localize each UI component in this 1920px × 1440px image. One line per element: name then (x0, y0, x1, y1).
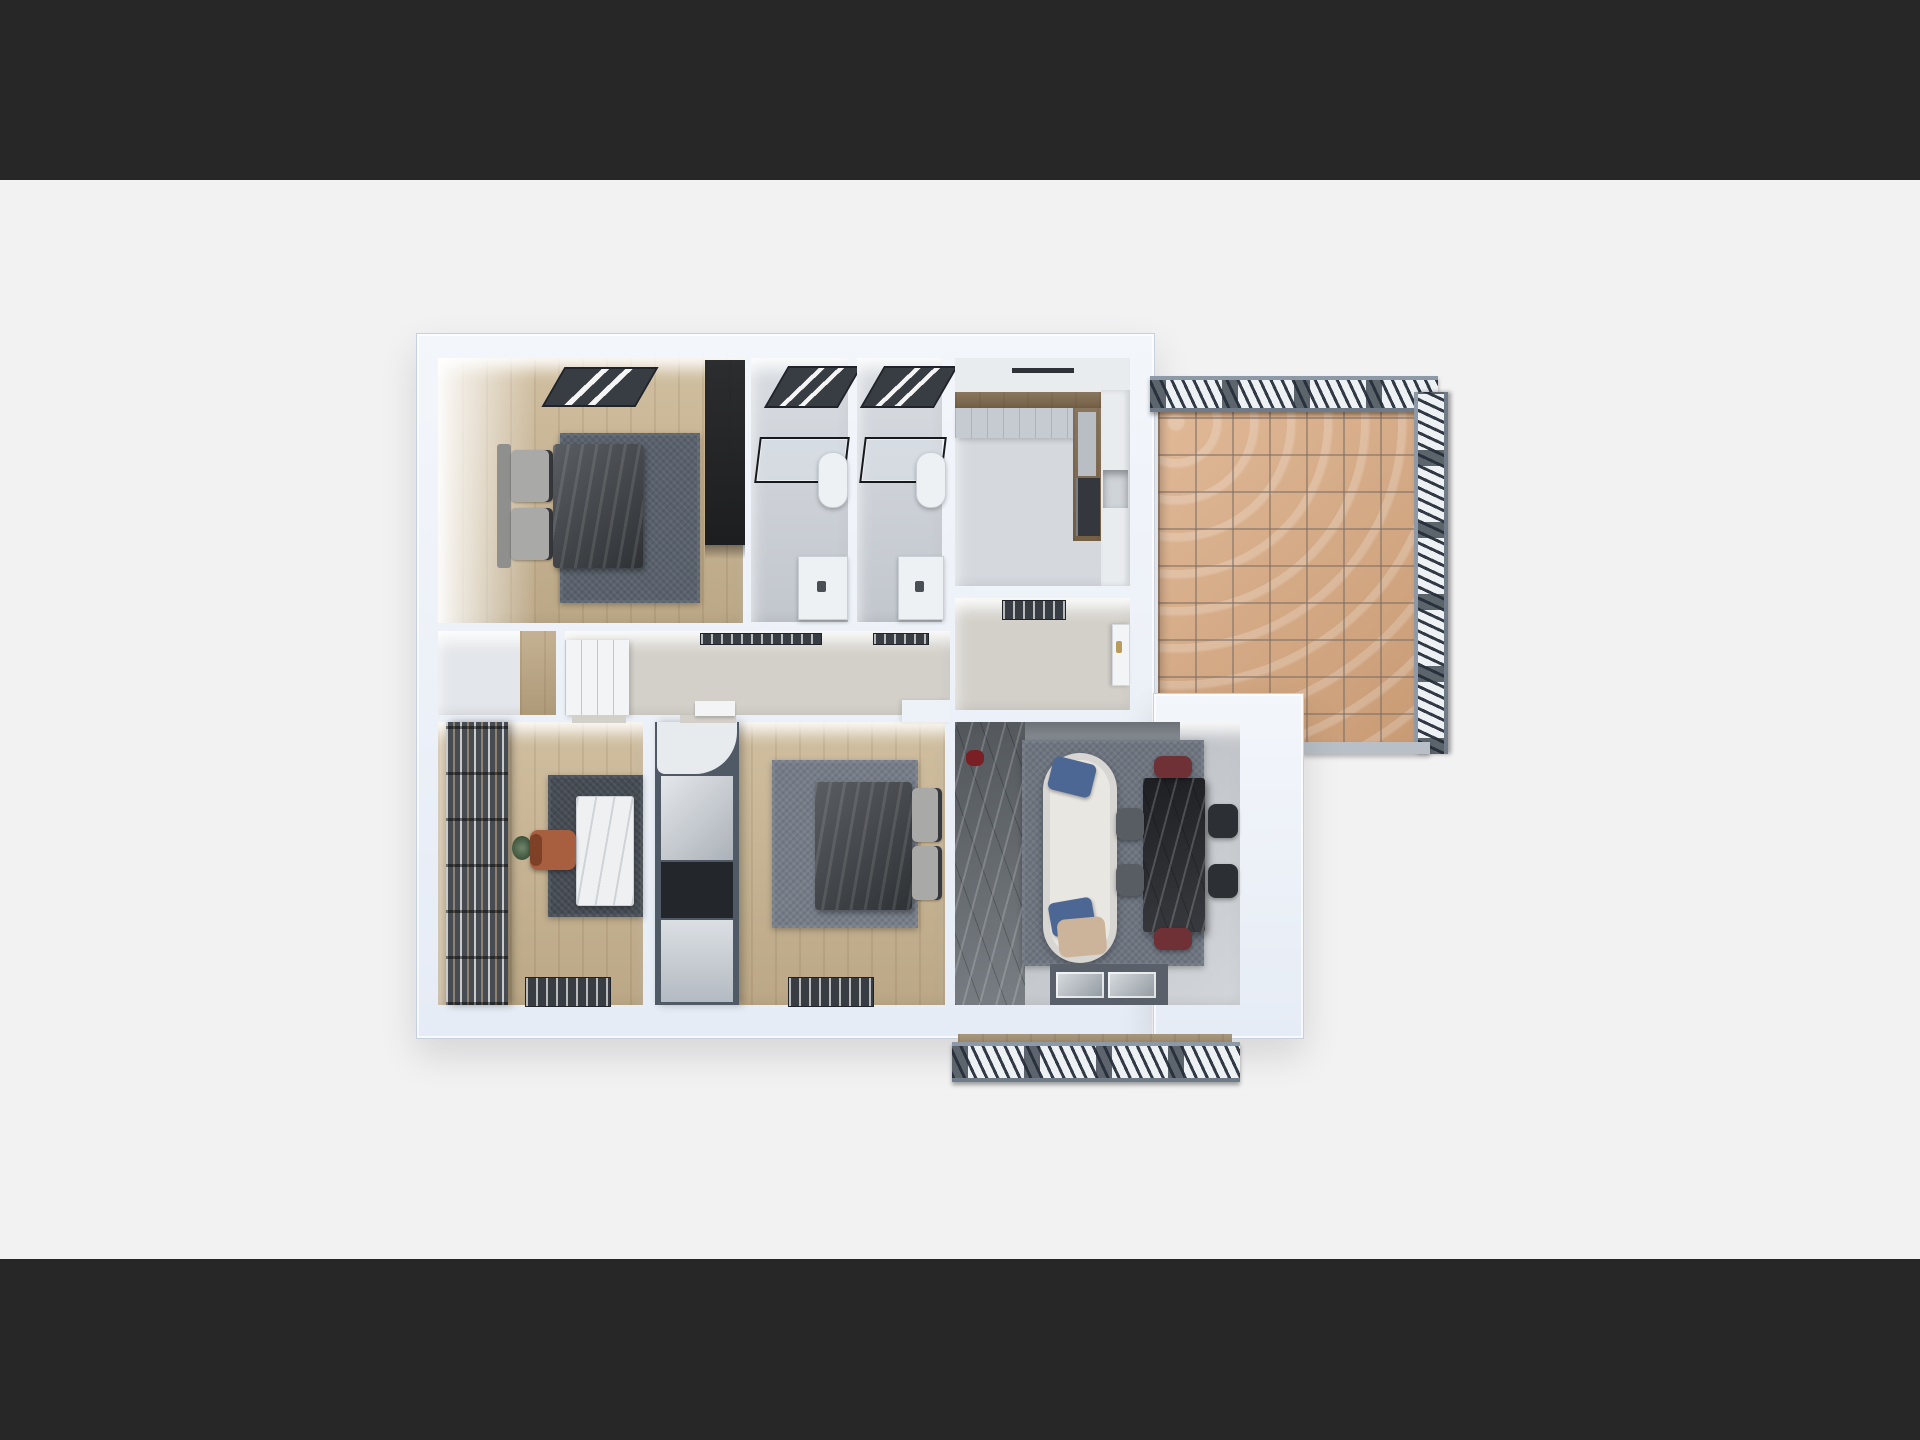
bed-headboard (497, 444, 511, 568)
doorway-office (572, 715, 626, 723)
wardrobe-dark-panel (661, 862, 733, 918)
marble-desk (576, 796, 634, 906)
ceiling-vent-icon (700, 633, 822, 645)
ceiling-vent-icon (764, 366, 862, 408)
kitchen-upper-wall-cabinets (955, 358, 1130, 392)
dining-chair-black (1208, 804, 1238, 838)
marble-floor-fade (1025, 722, 1180, 742)
office-chair (530, 830, 576, 870)
bed-pillow (511, 508, 553, 560)
door-handle-icon (1116, 641, 1122, 653)
dining-chair-gray (1116, 864, 1144, 896)
refrigerator (1076, 478, 1100, 536)
double-bed (497, 444, 643, 568)
bookshelf (446, 722, 508, 1005)
wall-segment (902, 700, 950, 722)
dining-chair-gray (1116, 808, 1144, 840)
letterbox-top-bar (0, 0, 1920, 180)
sofa-pillow-blue (1047, 755, 1098, 799)
nook-wood-strip (520, 631, 556, 715)
lower-balcony-railing (952, 1042, 1240, 1082)
side-balcony-railing-right (1414, 392, 1448, 754)
room-home-office (438, 722, 643, 1005)
wardrobe-lower-panel (661, 920, 733, 1002)
wardrobe-column (655, 722, 739, 1005)
dining-chair-red (1154, 928, 1192, 950)
room-master-bedroom (438, 358, 743, 623)
side-balcony-edge-strip (1302, 742, 1430, 754)
curved-sofa (1043, 753, 1117, 963)
cabinet-niche (1103, 470, 1128, 508)
screenshot-canvas (0, 0, 1920, 1440)
glass-pane (1108, 972, 1156, 998)
chair-backrest (530, 834, 542, 866)
ceiling-vent-icon (873, 633, 929, 645)
room-kitchen (955, 358, 1130, 586)
dining-chair-red (1154, 756, 1192, 778)
bed-pillow (912, 788, 942, 842)
doorway-bedroom-2 (680, 715, 736, 723)
throw-blanket (1056, 916, 1107, 958)
room-bedroom-2 (655, 722, 945, 1005)
vanity-sink (898, 556, 944, 620)
kitchen-tall-cabinet (1101, 390, 1130, 586)
kitchen-counter-top (955, 392, 1101, 408)
red-decor-vase (966, 750, 984, 766)
marble-floor-band (955, 722, 1025, 1005)
toilet (916, 452, 946, 508)
toilet (818, 452, 848, 508)
vanity-sink (798, 556, 848, 620)
wardrobe (705, 360, 745, 545)
ceiling-vent-icon (541, 367, 658, 407)
wardrobe-white-cap (657, 722, 737, 774)
side-balcony-railing-top (1150, 376, 1438, 412)
room-bathroom-2 (857, 358, 942, 622)
ceiling-vent-icon (1002, 600, 1066, 620)
floor-vent-icon (788, 977, 874, 1007)
bed-pillow (912, 846, 942, 900)
entry-door (1112, 624, 1130, 686)
kitchen-counter-front (1078, 412, 1096, 476)
floor-vent-icon (525, 977, 611, 1007)
room-storage-nook (438, 631, 556, 715)
built-in-closet (565, 640, 629, 715)
glass-pane (1056, 972, 1104, 998)
letterbox-bottom-bar (0, 1259, 1920, 1440)
room-bathroom-1 (751, 358, 848, 622)
open-door-leaf (695, 701, 735, 716)
render-viewport[interactable] (0, 180, 1920, 1259)
room-hallway (565, 631, 950, 715)
dining-table (1143, 778, 1205, 932)
bed-duvet (815, 782, 912, 910)
wardrobe-shadow (705, 545, 745, 559)
sliding-glass-door (1050, 964, 1168, 1005)
bed-duvet (553, 444, 643, 568)
room-entry-hall (955, 598, 1130, 710)
faucet-icon (915, 581, 924, 592)
wardrobe-mirror-panel (661, 776, 733, 860)
bed-pillow (511, 450, 553, 502)
double-bed (815, 782, 942, 910)
faucet-icon (817, 581, 826, 592)
room-living-dining (955, 722, 1240, 1005)
dining-chair-black (1208, 864, 1238, 898)
potted-plant (512, 836, 532, 860)
recessed-light-slot (1012, 368, 1074, 373)
